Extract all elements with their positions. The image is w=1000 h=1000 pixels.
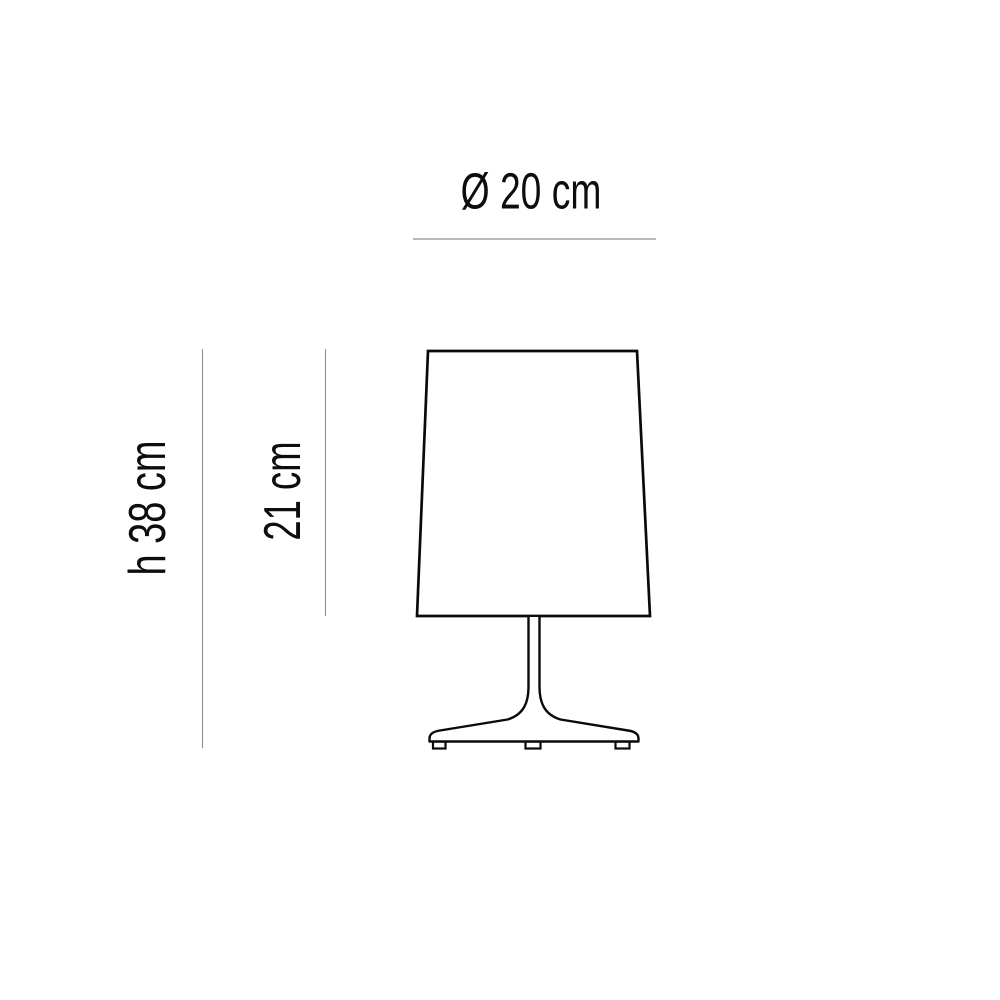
lamp-line-drawing — [0, 0, 1000, 1000]
lamp-dimension-diagram: Ø 20 cm h 38 cm 21 cm — [0, 0, 1000, 1000]
lamp-shade — [417, 351, 650, 616]
lamp-stem-and-base — [430, 617, 639, 742]
